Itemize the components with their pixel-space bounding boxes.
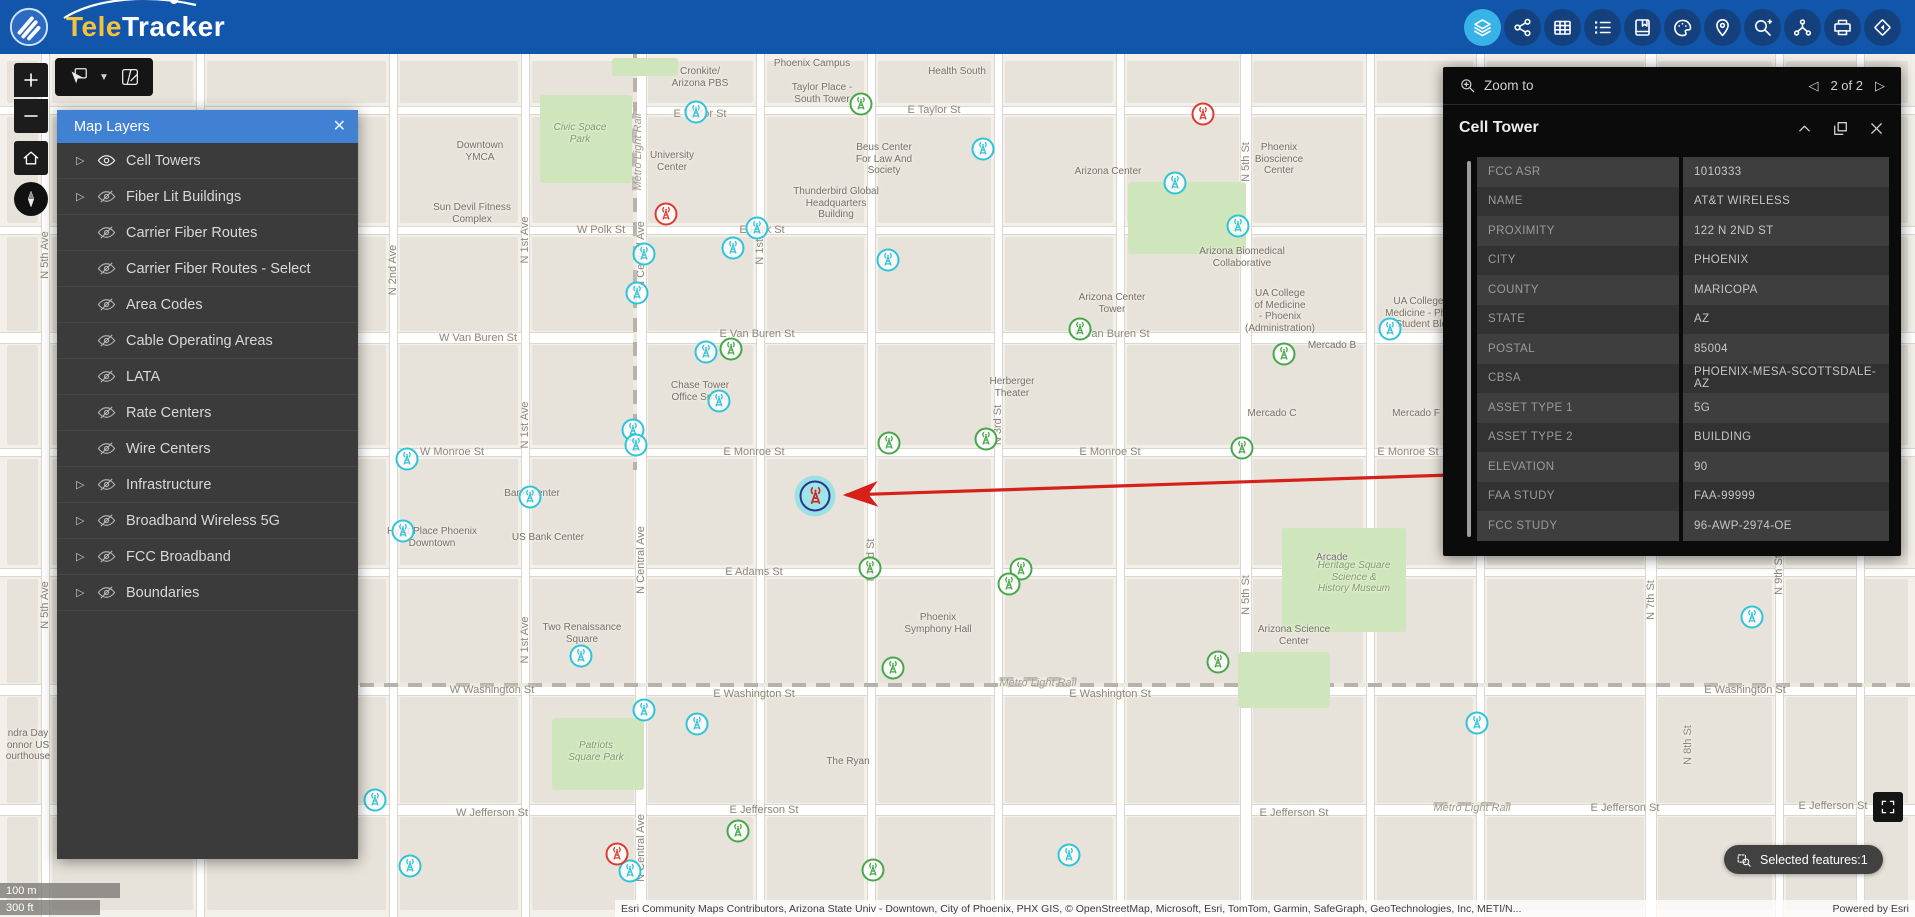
select-options-dropdown-button[interactable]: ▼ xyxy=(97,70,111,85)
street-label: W Van Buren St xyxy=(439,332,517,344)
street-label: E Washington St xyxy=(1704,684,1786,696)
map-poi-label: Arizona Center xyxy=(1075,166,1142,178)
city-block xyxy=(767,459,864,565)
visibility-off-eye-icon[interactable] xyxy=(97,187,117,207)
city-block xyxy=(1005,697,1113,803)
city-block xyxy=(1786,697,1908,803)
city-block xyxy=(1253,345,1363,445)
next-feature-button[interactable]: ▷ xyxy=(1873,78,1887,94)
street-label: N 9th St xyxy=(1773,555,1785,595)
city-block xyxy=(878,459,991,565)
cell-tower-marker[interactable] xyxy=(1069,318,1092,341)
cell-tower-marker[interactable] xyxy=(975,428,998,451)
cell-tower-marker[interactable] xyxy=(655,203,678,226)
map-poi-label: Phoenix Campus xyxy=(774,58,850,70)
map-attribution: Esri Community Maps Contributors, Arizon… xyxy=(615,900,1915,917)
visibility-off-eye-icon[interactable] xyxy=(97,403,117,423)
app-root: TeleTracker E Taylor StE Taylor StW Polk… xyxy=(0,0,1915,917)
attribute-row: ASSET TYPE 2BUILDING xyxy=(1477,423,1889,453)
cell-tower-marker[interactable] xyxy=(878,432,901,455)
attribute-row: COUNTYMARICOPA xyxy=(1477,275,1889,305)
visibility-off-eye-icon[interactable] xyxy=(97,547,117,567)
basemap-diamond-icon-button[interactable] xyxy=(1864,9,1901,46)
cell-tower-marker[interactable] xyxy=(1379,318,1402,341)
city-block xyxy=(532,459,634,565)
street-label: E Monroe St xyxy=(1079,446,1140,458)
map-poi-label: Cronkite/ Arizona PBS xyxy=(672,66,729,89)
attribute-label: CITY xyxy=(1477,246,1679,276)
app-title-tele: Tele xyxy=(66,11,122,42)
layer-label: Area Codes xyxy=(126,297,203,313)
cell-tower-marker[interactable] xyxy=(606,843,629,866)
layer-item-fcc-broadband[interactable]: ▷FCC Broadband xyxy=(57,539,358,575)
bookmark-icon-button[interactable] xyxy=(1624,9,1661,46)
powered-by-esri-link[interactable]: Powered by Esri xyxy=(1833,903,1909,915)
map-poi-label: Beus Center For Law And Society xyxy=(856,142,912,177)
attribute-value: BUILDING xyxy=(1683,423,1889,453)
attribute-label: ASSET TYPE 1 xyxy=(1477,393,1679,423)
city-block xyxy=(1127,817,1239,910)
previous-feature-button[interactable]: ◁ xyxy=(1806,78,1820,94)
attribute-row: FCC ASR1010333 xyxy=(1477,157,1889,187)
street-label: E Monroe St xyxy=(1377,446,1438,458)
map-poi-label: Thunderbird Global Headquarters Building xyxy=(793,186,879,221)
street-label: E Washington St xyxy=(713,688,795,700)
cell-tower-marker[interactable] xyxy=(1058,844,1081,867)
city-block xyxy=(7,345,38,445)
feature-panel-actionbar: Zoom to ◁ 2 of 2 ▷ xyxy=(1443,67,1901,105)
feature-title: Cell Tower xyxy=(1459,119,1539,137)
attribute-row: FCC STUDY96-AWP-2974-OE xyxy=(1477,511,1889,541)
map-poi-label: US Bank Center xyxy=(512,532,584,544)
attribute-value: MARICOPA xyxy=(1683,275,1889,305)
attribute-value: 96-AWP-2974-OE xyxy=(1683,511,1889,541)
visibility-off-eye-icon[interactable] xyxy=(97,475,117,495)
share-icon xyxy=(1512,17,1533,38)
attribute-row: ELEVATION90 xyxy=(1477,452,1889,482)
city-block xyxy=(400,61,518,103)
layers-icon xyxy=(1472,17,1493,38)
city-block xyxy=(878,817,991,910)
attribute-value: 1010333 xyxy=(1683,157,1889,187)
city-block xyxy=(1005,237,1113,331)
select-tool-button[interactable] xyxy=(65,64,91,90)
layer-item-fiber-lit-buildings[interactable]: ▷Fiber Lit Buildings xyxy=(57,179,358,215)
layers-icon-button[interactable] xyxy=(1464,9,1501,46)
layer-label: Carrier Fiber Routes - Select xyxy=(126,261,311,277)
map-poi-label: ndra Day onnor US ourthouse xyxy=(6,728,50,763)
city-block xyxy=(1005,817,1113,910)
attribute-row: STATEAZ xyxy=(1477,305,1889,335)
map-layers-title: Map Layers xyxy=(74,119,150,135)
layer-item-wire-centers[interactable]: Wire Centers xyxy=(57,431,358,467)
attribute-label: COUNTY xyxy=(1477,275,1679,305)
visibility-off-eye-icon[interactable] xyxy=(97,259,117,279)
selected-cell-tower-marker[interactable] xyxy=(800,481,831,512)
city-block xyxy=(648,459,753,565)
feature-panel-titlebar: Cell Tower xyxy=(1443,105,1901,151)
layer-item-cell-towers[interactable]: ▷Cell Towers xyxy=(57,143,358,179)
city-block xyxy=(1127,459,1239,565)
zoom-to-button[interactable]: Zoom to xyxy=(1459,77,1534,94)
map-poi-label: Arizona Center Tower xyxy=(1079,292,1146,315)
dock-panel-button[interactable] xyxy=(1832,120,1849,137)
city-block xyxy=(1377,817,1473,910)
cell-tower-marker[interactable] xyxy=(862,859,885,882)
city-block xyxy=(1487,579,1644,683)
layer-item-area-codes[interactable]: Area Codes xyxy=(57,287,358,323)
app-title: TeleTracker xyxy=(66,11,225,43)
map-poi-label: Heritage Square Science & History Museum xyxy=(1318,560,1391,595)
expand-caret-icon[interactable]: ▷ xyxy=(76,514,88,527)
map-layers-list: ▷Cell Towers▷Fiber Lit BuildingsCarrier … xyxy=(57,143,358,611)
visibility-off-eye-icon[interactable] xyxy=(97,331,117,351)
city-block xyxy=(400,697,518,803)
layer-label: Rate Centers xyxy=(126,405,211,421)
visibility-on-eye-icon[interactable] xyxy=(97,151,117,171)
visibility-off-eye-icon[interactable] xyxy=(97,223,117,243)
attribute-row: CBSAPHOENIX-MESA-SCOTTSDALE-AZ xyxy=(1477,364,1889,394)
street-label: N 5th Ave xyxy=(39,581,51,629)
layer-label: FCC Broadband xyxy=(126,549,231,565)
attribute-label: FCC ASR xyxy=(1477,157,1679,187)
street xyxy=(1367,54,1374,917)
cell-tower-marker[interactable] xyxy=(626,282,649,305)
street-label: N 8th St xyxy=(1682,725,1694,765)
selected-features-label: Selected features:1 xyxy=(1760,853,1868,867)
expand-caret-icon[interactable]: ▷ xyxy=(76,190,88,203)
map-layers-panel-header: Map Layers ✕ xyxy=(57,110,358,143)
street-label: E Adams St xyxy=(725,566,782,578)
map-poi-label: Arizona Science Center xyxy=(1258,624,1330,647)
visibility-off-eye-icon[interactable] xyxy=(97,295,117,315)
map-poi-label: Mercado F xyxy=(1392,408,1440,420)
city-block xyxy=(767,345,864,445)
cell-tower-marker[interactable] xyxy=(877,249,900,272)
clear-selection-button[interactable] xyxy=(117,64,143,90)
street-label: E Jefferson St xyxy=(730,804,799,816)
visibility-off-eye-icon[interactable] xyxy=(97,583,117,603)
cell-tower-marker[interactable] xyxy=(633,699,656,722)
feature-table-scrollbar[interactable] xyxy=(1467,161,1471,537)
city-block xyxy=(1005,61,1113,103)
cell-tower-marker[interactable] xyxy=(722,237,745,260)
compass-button[interactable] xyxy=(14,182,48,216)
cell-tower-marker[interactable] xyxy=(633,243,656,266)
city-block xyxy=(1253,61,1363,103)
street-label: N 1st Ave xyxy=(519,617,531,664)
locate-pin-icon xyxy=(1712,17,1733,38)
cell-tower-marker[interactable] xyxy=(972,138,995,161)
feature-panel-actions xyxy=(1796,120,1885,137)
draw-icon xyxy=(1672,17,1693,38)
street xyxy=(390,54,397,917)
layer-item-lata[interactable]: LATA xyxy=(57,359,358,395)
layer-label: Cell Towers xyxy=(126,153,201,169)
cell-tower-marker[interactable] xyxy=(998,573,1021,596)
city-block xyxy=(532,345,634,445)
cell-tower-marker[interactable] xyxy=(1227,215,1250,238)
city-block xyxy=(532,237,634,331)
feature-info-panel: Zoom to ◁ 2 of 2 ▷ Cell Tower FCC ASR101… xyxy=(1443,67,1901,556)
scale-bar-imperial: 300 ft xyxy=(0,900,100,915)
map-poi-label: The Ryan xyxy=(826,756,869,768)
feature-attributes-table: FCC ASR1010333NAMEAT&T WIRELESSPROXIMITY… xyxy=(1477,157,1889,541)
feature-pagination: ◁ 2 of 2 ▷ xyxy=(1806,78,1887,94)
cell-tower-marker[interactable] xyxy=(720,338,743,361)
layer-item-carrier-fiber-routes[interactable]: Carrier Fiber Routes xyxy=(57,215,358,251)
city-block xyxy=(7,579,38,683)
cell-tower-marker[interactable] xyxy=(859,557,882,580)
cell-tower-marker[interactable] xyxy=(708,390,731,413)
collapse-panel-button[interactable] xyxy=(1796,120,1813,137)
attribute-value: 85004 xyxy=(1683,334,1889,364)
cell-tower-marker[interactable] xyxy=(570,645,593,668)
map-poi-label: Mercado C xyxy=(1248,408,1297,420)
chevron-up-icon xyxy=(1796,120,1813,137)
network-route-icon-button[interactable] xyxy=(1784,9,1821,46)
layer-label: Fiber Lit Buildings xyxy=(126,189,241,205)
query-search-icon-button[interactable] xyxy=(1744,9,1781,46)
basemap-diamond-icon xyxy=(1872,17,1893,38)
expand-caret-icon[interactable]: ▷ xyxy=(76,550,88,563)
map-layers-panel: Map Layers ✕ ▷Cell Towers▷Fiber Lit Buil… xyxy=(57,110,358,859)
attribute-value: AZ xyxy=(1683,305,1889,335)
city-block xyxy=(400,345,518,445)
map-poi-label: UA College of Medicine - Phoenix (Admini… xyxy=(1245,288,1315,334)
close-icon[interactable]: ✕ xyxy=(333,119,346,135)
city-block xyxy=(1487,697,1644,803)
map-poi-label: Patriots Square Park xyxy=(568,740,624,763)
print-icon-button[interactable] xyxy=(1824,9,1861,46)
city-block xyxy=(767,817,864,910)
city-block xyxy=(878,345,991,445)
cell-tower-marker[interactable] xyxy=(1164,172,1187,195)
city-block xyxy=(400,459,518,565)
city-block xyxy=(400,579,518,683)
attribute-row: PROXIMITY122 N 2ND ST xyxy=(1477,216,1889,246)
locate-pin-icon-button[interactable] xyxy=(1704,9,1741,46)
street xyxy=(757,54,764,917)
cell-tower-marker[interactable] xyxy=(625,434,648,457)
cell-tower-marker[interactable] xyxy=(1231,437,1254,460)
cell-tower-marker[interactable] xyxy=(1192,103,1215,126)
fullscreen-corners-icon xyxy=(1880,799,1896,815)
street-label: N 5th St xyxy=(1240,575,1252,615)
cell-tower-marker[interactable] xyxy=(695,341,718,364)
cell-tower-marker[interactable] xyxy=(1466,712,1489,735)
map-poi-label: Downtown YMCA xyxy=(457,140,504,163)
street-label: Metro Light Rail xyxy=(632,113,636,190)
city-block xyxy=(1127,697,1239,803)
layer-item-cable-operating-areas[interactable]: Cable Operating Areas xyxy=(57,323,358,359)
fullscreen-button[interactable] xyxy=(1873,792,1903,822)
street xyxy=(868,54,875,917)
cell-tower-marker[interactable] xyxy=(685,101,708,124)
street-label: N Central Ave xyxy=(635,526,647,594)
attribute-value: PHOENIX xyxy=(1683,246,1889,276)
map-poi-label: University Center xyxy=(650,150,694,173)
city-block xyxy=(767,237,864,331)
layer-item-infrastructure[interactable]: ▷Infrastructure xyxy=(57,467,358,503)
cell-tower-marker[interactable] xyxy=(882,657,905,680)
cell-tower-marker[interactable] xyxy=(392,520,415,543)
street-label: N 1st Ave xyxy=(519,402,531,449)
attribute-value: 122 N 2ND ST xyxy=(1683,216,1889,246)
city-block xyxy=(1127,61,1239,103)
pagination-count: 2 of 2 xyxy=(1830,78,1863,93)
app-header: TeleTracker xyxy=(0,0,1915,54)
expand-caret-icon[interactable]: ▷ xyxy=(76,478,88,491)
cell-tower-marker[interactable] xyxy=(1273,343,1296,366)
city-block xyxy=(1658,697,1772,803)
attribute-value: 5G xyxy=(1683,393,1889,423)
attribute-label: FCC STUDY xyxy=(1477,511,1679,541)
layer-item-boundaries[interactable]: ▷Boundaries xyxy=(57,575,358,611)
street xyxy=(1117,54,1124,917)
city-block xyxy=(1658,579,1772,683)
print-icon xyxy=(1832,17,1853,38)
attribute-label: POSTAL xyxy=(1477,334,1679,364)
dropdown-caret-icon: ▼ xyxy=(99,72,109,83)
app-logo-icon xyxy=(8,6,50,48)
city-block xyxy=(1487,817,1644,910)
table-icon-button[interactable] xyxy=(1544,9,1581,46)
street-label: N 2nd Ave xyxy=(387,245,399,296)
map-poi-label: Mercado B xyxy=(1308,340,1356,352)
zoom-to-magnifier-icon xyxy=(1459,77,1476,94)
street-label: E Jefferson St xyxy=(1260,807,1329,819)
attribute-row: FAA STUDYFAA-99999 xyxy=(1477,482,1889,512)
attribute-label: ASSET TYPE 2 xyxy=(1477,423,1679,453)
city-block xyxy=(1253,817,1363,910)
expand-caret-icon[interactable]: ▷ xyxy=(76,586,88,599)
layer-item-rate-centers[interactable]: Rate Centers xyxy=(57,395,358,431)
attribute-label: CBSA xyxy=(1477,364,1679,394)
city-block xyxy=(1377,697,1473,803)
share-icon-button[interactable] xyxy=(1504,9,1541,46)
attribute-row: NAMEAT&T WIRELESS xyxy=(1477,187,1889,217)
city-block xyxy=(1127,345,1239,445)
street-label: E Washington St xyxy=(1069,688,1151,700)
attribute-value: PHOENIX-MESA-SCOTTSDALE-AZ xyxy=(1683,364,1889,394)
layer-label: Broadband Wireless 5G xyxy=(126,513,280,529)
attribution-text: Esri Community Maps Contributors, Arizon… xyxy=(621,903,1521,915)
city-block xyxy=(767,579,864,683)
park-area xyxy=(1238,652,1330,708)
map-poi-label: Civic Space Park xyxy=(554,122,607,145)
city-block xyxy=(207,61,386,103)
map-poi-label: Herberger Theater xyxy=(989,376,1034,399)
rail-label: Metro Light Rail xyxy=(999,677,1076,681)
map-poi-label: Sun Devil Fitness Complex xyxy=(433,202,511,225)
attribute-label: ELEVATION xyxy=(1477,452,1679,482)
street-label: W Jefferson St xyxy=(456,807,528,819)
attribute-row: CITYPHOENIX xyxy=(1477,246,1889,276)
zoom-out-button[interactable] xyxy=(14,99,48,133)
city-block xyxy=(1786,579,1908,683)
layer-label: Infrastructure xyxy=(126,477,211,493)
bookmark-icon xyxy=(1632,17,1653,38)
light-rail-line xyxy=(360,683,1915,687)
cell-tower-marker[interactable] xyxy=(399,855,422,878)
cell-tower-marker[interactable] xyxy=(727,820,750,843)
cell-tower-marker[interactable] xyxy=(396,448,419,471)
street-label: N 5th Ave xyxy=(39,231,51,279)
attribute-value: FAA-99999 xyxy=(1683,482,1889,512)
layer-item-carrier-fiber-routes-select[interactable]: Carrier Fiber Routes - Select xyxy=(57,251,358,287)
city-block xyxy=(1005,579,1113,683)
visibility-off-eye-icon[interactable] xyxy=(97,439,117,459)
attribute-label: NAME xyxy=(1477,187,1679,217)
table-icon xyxy=(1552,17,1573,38)
select-by-rectangle-icon xyxy=(1736,852,1752,868)
zoom-in-button[interactable] xyxy=(14,63,48,97)
street xyxy=(995,54,1002,917)
attribute-row: ASSET TYPE 15G xyxy=(1477,393,1889,423)
legend-list-icon xyxy=(1592,17,1613,38)
attribute-row: POSTAL85004 xyxy=(1477,334,1889,364)
visibility-off-eye-icon[interactable] xyxy=(97,367,117,387)
draw-icon-button[interactable] xyxy=(1664,9,1701,46)
app-title-tracker: Tracker xyxy=(122,11,225,42)
cell-tower-marker[interactable] xyxy=(364,789,387,812)
street-label: W Monroe St xyxy=(420,446,484,458)
cell-tower-marker[interactable] xyxy=(850,93,873,116)
layer-item-broadband-wireless-5g[interactable]: ▷Broadband Wireless 5G xyxy=(57,503,358,539)
cell-tower-marker[interactable] xyxy=(686,713,709,736)
cell-tower-marker[interactable] xyxy=(1741,606,1764,629)
map-poi-label: Two Renaissance Square xyxy=(543,622,622,645)
map-poi-label: Arizona Biomedical Collaborative xyxy=(1199,246,1285,269)
park-area xyxy=(612,58,678,76)
close-panel-button[interactable] xyxy=(1868,120,1885,137)
city-block xyxy=(7,237,38,331)
street xyxy=(42,54,49,917)
city-block xyxy=(878,697,991,803)
street-label: E Monroe St xyxy=(723,446,784,458)
cell-tower-marker[interactable] xyxy=(519,486,542,509)
attribute-label: PROXIMITY xyxy=(1477,216,1679,246)
expand-caret-icon[interactable]: ▷ xyxy=(76,154,88,167)
visibility-off-eye-icon[interactable] xyxy=(97,511,117,531)
attribute-label: FAA STUDY xyxy=(1477,482,1679,512)
rail-label: Metro Light Rail xyxy=(1433,802,1510,806)
scale-bar-metric: 100 m xyxy=(0,883,120,898)
street-label: W Polk St xyxy=(577,224,625,236)
street-label: E Jefferson St xyxy=(1799,800,1868,812)
close-icon xyxy=(1868,120,1885,137)
city-block xyxy=(1253,697,1363,803)
city-block xyxy=(1005,459,1113,565)
cell-tower-marker[interactable] xyxy=(746,217,769,240)
selected-features-badge[interactable]: Selected features:1 xyxy=(1724,845,1883,874)
query-search-icon xyxy=(1752,17,1773,38)
cell-tower-marker[interactable] xyxy=(1207,651,1230,674)
street-label: E Taylor St xyxy=(908,104,961,116)
street-label: N 1st Ave xyxy=(519,217,531,264)
selection-toolbar: ▼ xyxy=(55,58,153,96)
map-poi-label: Phoenix Bioscience Center xyxy=(1255,142,1303,177)
home-extent-button[interactable] xyxy=(14,141,48,175)
header-toolbar xyxy=(1464,9,1901,46)
city-block xyxy=(648,579,753,683)
attribute-value: 90 xyxy=(1683,452,1889,482)
street-label: N 5th St xyxy=(1240,142,1252,182)
attribute-label: STATE xyxy=(1477,305,1679,335)
layer-label: LATA xyxy=(126,369,160,385)
legend-list-icon-button[interactable] xyxy=(1584,9,1621,46)
